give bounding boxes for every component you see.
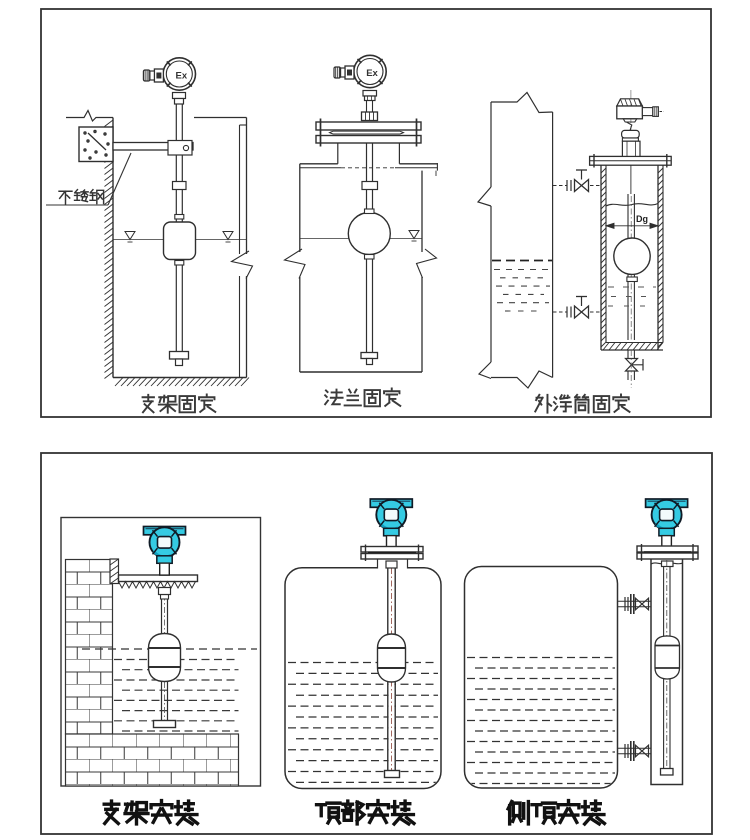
svg-text:Dg: Dg [636,214,648,224]
svg-text:Ex: Ex [366,68,378,79]
svg-text:Ex: Ex [175,71,187,82]
